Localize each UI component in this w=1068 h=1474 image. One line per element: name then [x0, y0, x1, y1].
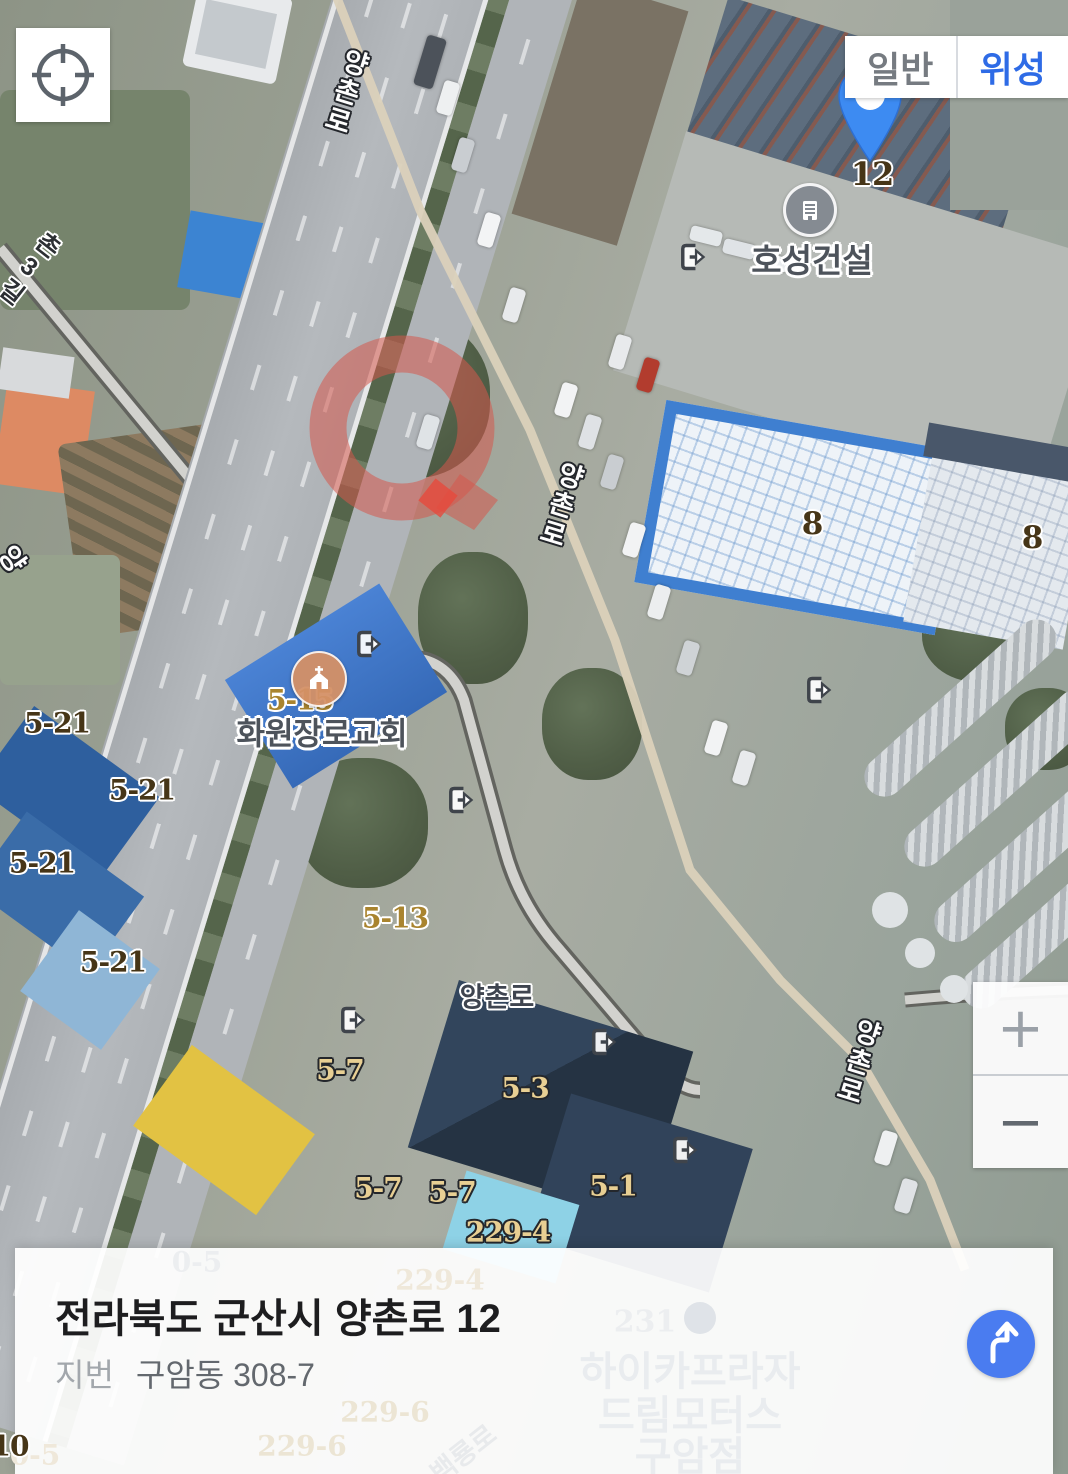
- building-poi-icon[interactable]: [783, 183, 837, 237]
- lot-label: 5-3: [501, 1072, 549, 1105]
- faint-map-label: 229-6: [340, 1396, 430, 1429]
- map-type-normal-button[interactable]: 일반: [845, 36, 958, 98]
- map-viewport[interactable]: 양촌로 양촌로 양촌로 양촌로 촌3길 양 5-21 5-21 5-21 5-2…: [0, 0, 1068, 1474]
- lot-label: 5-21: [80, 946, 146, 979]
- lot-label: 8: [1022, 520, 1043, 556]
- lot-label: 5-7: [354, 1172, 402, 1205]
- lot-label: 5-7: [428, 1176, 476, 1209]
- map-type-satellite-button[interactable]: 위성: [958, 36, 1068, 98]
- lot-label: 5-7: [316, 1054, 364, 1087]
- building-icon: [797, 197, 823, 223]
- church-poi-icon[interactable]: [291, 651, 347, 707]
- lot-label: 8: [802, 506, 823, 542]
- lot-label: 5-13: [362, 902, 428, 935]
- zoom-out-button[interactable]: −: [973, 1076, 1068, 1168]
- church-icon: [304, 664, 334, 694]
- faint-map-label: 구암점: [635, 1424, 745, 1474]
- lot-label: 5-21: [24, 707, 90, 740]
- poi-label-church[interactable]: 화원장로교회: [236, 709, 407, 754]
- poi-label-construction[interactable]: 호성건설: [751, 234, 872, 282]
- road-label-yangchonro-horizontal: 양촌로: [460, 976, 535, 1015]
- faint-map-label: 0-5: [172, 1246, 223, 1279]
- entrance-icon: [353, 629, 383, 659]
- directions-button[interactable]: [967, 1310, 1035, 1378]
- zoom-control: + −: [973, 982, 1068, 1168]
- pin-number-label: 12: [851, 155, 894, 193]
- lot-label: 5-21: [109, 774, 175, 807]
- entrance-icon: [445, 785, 475, 815]
- entrance-icon: [337, 1005, 367, 1035]
- entrance-icon: [588, 1027, 618, 1057]
- entrance-icon: [677, 242, 707, 272]
- faint-map-label: 229-6: [257, 1430, 347, 1463]
- faint-map-label: 229-4: [395, 1264, 485, 1297]
- lot-label: 5-21: [9, 847, 75, 880]
- zoom-in-button[interactable]: +: [973, 982, 1068, 1076]
- route-arrow-icon: [967, 1310, 1035, 1378]
- locate-button[interactable]: [16, 28, 110, 122]
- map-type-toggle: 일반 위성: [845, 36, 1068, 98]
- crosshair-icon: [30, 42, 96, 108]
- entrance-icon: [669, 1135, 699, 1165]
- entrance-icon: [803, 675, 833, 705]
- wrench-icon: [684, 1302, 716, 1334]
- lot-label: 10: [0, 1430, 28, 1463]
- lot-label: 5-1: [589, 1170, 637, 1203]
- target-location-marker: [292, 318, 512, 538]
- faint-map-label: 231: [614, 1305, 677, 1340]
- lot-label: 229-4: [466, 1216, 551, 1249]
- address-panel: [15, 1248, 1053, 1474]
